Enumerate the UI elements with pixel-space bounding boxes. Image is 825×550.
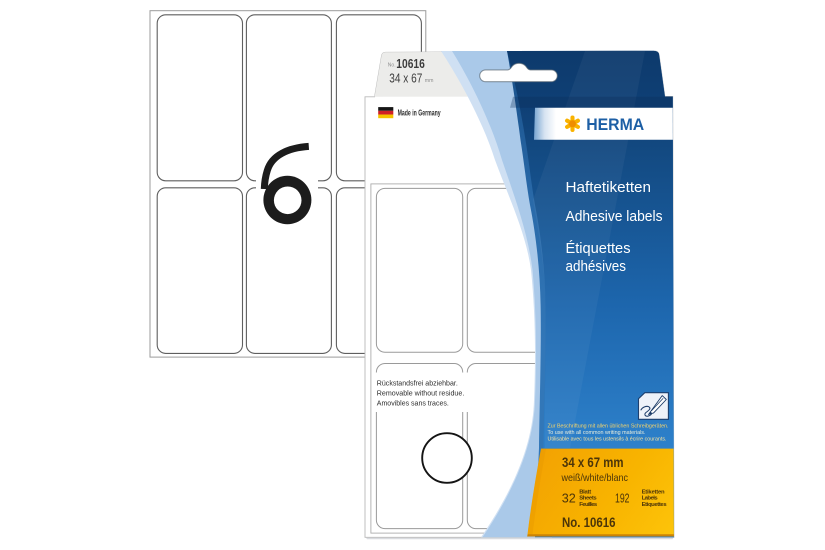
svg-text:34 x 67: 34 x 67 (389, 71, 422, 85)
svg-text:Zur Beschriftung mit allen übl: Zur Beschriftung mit allen üblichen Schr… (548, 424, 669, 430)
svg-text:10616: 10616 (396, 57, 425, 71)
svg-text:Sheets: Sheets (579, 496, 597, 502)
svg-text:Rückstandsfrei abziehbar.: Rückstandsfrei abziehbar. (377, 378, 458, 387)
svg-text:Utilisable avec tous les usten: Utilisable avec tous les ustensils à écr… (548, 436, 667, 442)
svg-text:32: 32 (562, 492, 576, 506)
svg-text:Blatt: Blatt (579, 489, 591, 495)
svg-text:34 x 67 mm: 34 x 67 mm (562, 455, 624, 470)
svg-text:Removable without residue.: Removable without residue. (377, 389, 465, 398)
svg-text:Etiketten: Etiketten (642, 489, 665, 495)
svg-text:adhésives: adhésives (566, 258, 627, 275)
svg-text:Haftetiketten: Haftetiketten (566, 179, 652, 196)
svg-text:Made in Germany: Made in Germany (398, 108, 441, 117)
svg-text:weiß/white/blanc: weiß/white/blanc (561, 473, 628, 484)
svg-text:192: 192 (615, 492, 630, 506)
svg-text:No. 10616: No. 10616 (562, 515, 616, 530)
svg-text:Feuilles: Feuilles (579, 502, 598, 508)
svg-text:Amovibles sans traces.: Amovibles sans traces. (377, 399, 449, 408)
svg-text:Labels: Labels (642, 496, 659, 502)
svg-text:HERMA: HERMA (586, 115, 644, 134)
svg-text:Adhesive labels: Adhesive labels (566, 208, 663, 225)
svg-text:To use with all common writing: To use with all common writing materials… (548, 430, 646, 436)
svg-text:No.: No. (388, 63, 396, 69)
svg-text:Etiquettes: Etiquettes (642, 502, 668, 508)
svg-text:mm: mm (425, 78, 434, 84)
svg-text:Étiquettes: Étiquettes (566, 240, 631, 257)
